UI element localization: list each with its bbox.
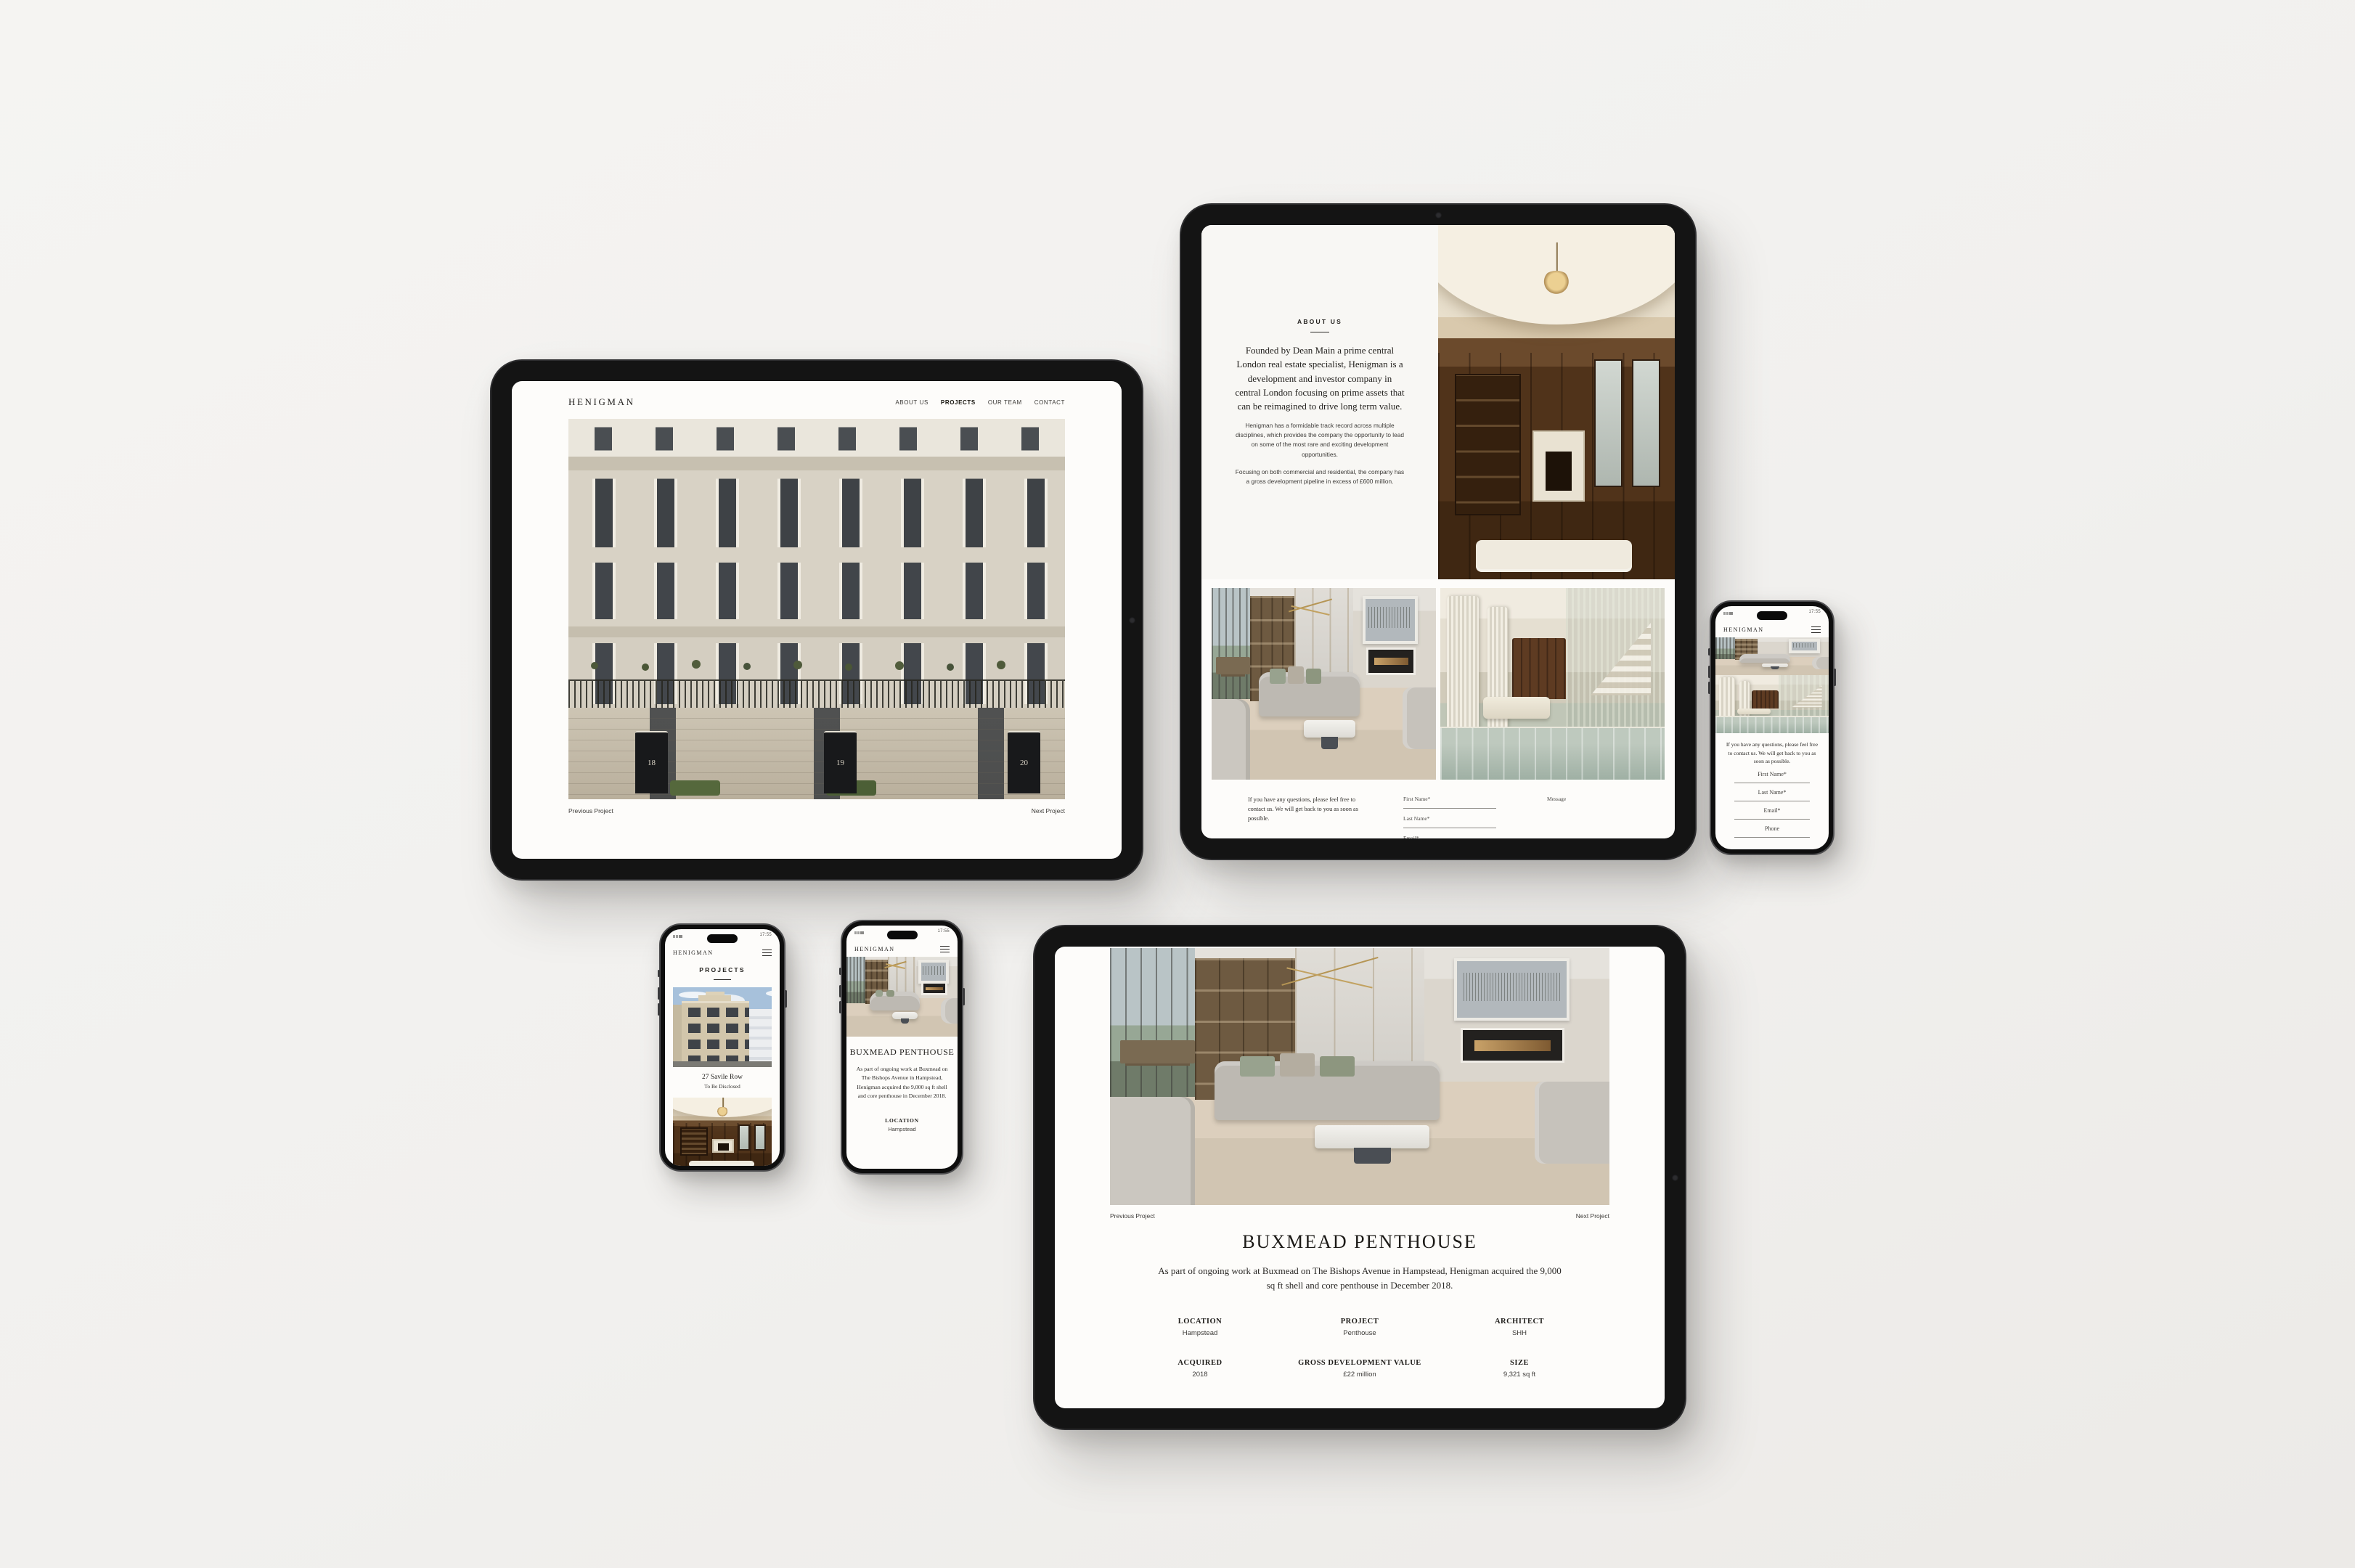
detail-location: LOCATION Hampstead: [1120, 1318, 1280, 1337]
window-wall: [1715, 637, 1735, 659]
detail-gdv: GROSS DEVELOPMENT VALUE £22 million: [1280, 1359, 1440, 1379]
detail-label: LOCATION: [846, 1117, 958, 1124]
about-page-screen: ABOUT US Founded by Dean Main a prime ce…: [1201, 225, 1675, 838]
first-name-label: First Name*: [1715, 771, 1829, 777]
volume-up-button: [658, 987, 660, 1000]
buxmead-page-screen: 17:55 HENIGMAN BUXMEAD PENTHOUSE As p: [846, 926, 958, 1169]
menu-icon[interactable]: [1811, 626, 1821, 633]
phone-label: Phone: [1715, 825, 1829, 832]
savile-row-photo: [673, 987, 772, 1067]
buxmead-page-screen: Previous Project Next Project BUXMEAD PE…: [1055, 947, 1665, 1408]
dynamic-island: [1757, 611, 1787, 620]
contact-fields: First Name* Last Name* Email* Phone: [1715, 771, 1829, 838]
heading-rule: [1310, 332, 1329, 332]
project-page-screen: HENIGMAN ABOUT US PROJECTS OUR TEAM CONT…: [512, 381, 1122, 859]
indoor-pool-photo: [1440, 588, 1665, 780]
volume-up-button: [1708, 666, 1710, 678]
power-button: [1834, 669, 1836, 686]
wall-art: [918, 960, 949, 983]
detail-label: ACQUIRED: [1120, 1359, 1280, 1367]
about-body-paragraph-1: Henigman has a formidable track record a…: [1235, 421, 1405, 459]
camera-icon: [1435, 212, 1442, 219]
message-field[interactable]: Message: [1541, 796, 1646, 838]
detail-value: 9,321 sq ft: [1440, 1371, 1599, 1379]
mobile-header: HENIGMAN: [846, 940, 958, 957]
bookcase: [1455, 374, 1521, 515]
main-nav: ABOUT US PROJECTS OUR TEAM CONTACT: [895, 399, 1065, 406]
detail-label: ARCHITECT: [1440, 1318, 1599, 1326]
wall-art: [1454, 958, 1570, 1021]
detail-value: 2018: [1120, 1371, 1280, 1379]
contact-page-screen: 17:55 HENIGMAN: [1715, 606, 1829, 849]
loungers: [1483, 697, 1551, 718]
indoor-pool-photo: [1715, 675, 1829, 733]
previous-project-link[interactable]: Previous Project: [568, 807, 613, 814]
about-text-column: ABOUT US Founded by Dean Main a prime ce…: [1201, 225, 1438, 579]
sofa: [1739, 654, 1790, 663]
previous-project-link[interactable]: Previous Project: [1110, 1212, 1155, 1220]
volume-down-button: [839, 1001, 841, 1013]
detail-architect: ARCHITECT SHH: [1440, 1318, 1599, 1337]
action-button: [839, 968, 841, 975]
detail-value: SHH: [1440, 1329, 1599, 1337]
project-title: BUXMEAD PENTHOUSE: [1055, 1231, 1665, 1253]
penthouse-living-room-photo: [1110, 948, 1609, 1205]
brand-logo[interactable]: HENIGMAN: [568, 396, 635, 408]
stone-building: [682, 1001, 749, 1062]
facade-cornice: [568, 457, 1065, 470]
tall-window: [1594, 359, 1623, 487]
ipad-buxmead-page: Previous Project Next Project BUXMEAD PE…: [1033, 925, 1686, 1430]
first-name-input: [1734, 779, 1810, 783]
status-time: 17:55: [937, 929, 950, 934]
email-label: Email*: [1403, 835, 1509, 838]
bookcase: [680, 1127, 708, 1156]
window-wall: [1110, 948, 1195, 1097]
ipad-about-page: ABOUT US Founded by Dean Main a prime ce…: [1180, 203, 1697, 860]
nav-item-team[interactable]: OUR TEAM: [988, 399, 1022, 406]
brand-logo[interactable]: HENIGMAN: [673, 950, 714, 956]
street: [673, 1061, 772, 1067]
first-name-input: [1403, 804, 1496, 809]
mockup-canvas: HENIGMAN ABOUT US PROJECTS OUR TEAM CONT…: [0, 0, 2355, 1568]
brand-logo[interactable]: HENIGMAN: [1723, 626, 1764, 633]
dynamic-island: [887, 931, 918, 939]
last-name-input: [1734, 797, 1810, 801]
projects-page-screen: 17:55 HENIGMAN PROJECTS 27 Savile Row: [665, 929, 780, 1166]
dining-table: [1216, 657, 1249, 674]
coffee-table: [892, 1012, 918, 1019]
menu-icon[interactable]: [940, 946, 950, 952]
sputnik-chandelier: [1280, 953, 1380, 995]
last-name-label: Last Name*: [1403, 815, 1509, 822]
fireplace: [1532, 430, 1585, 502]
penthouse-living-room-photo: [1212, 588, 1436, 780]
project-description: As part of ongoing work at Buxmead on Th…: [1156, 1264, 1563, 1293]
detail-value: Hampstead: [846, 1126, 958, 1132]
wall-art: [1789, 639, 1819, 653]
signal-icon: [673, 935, 682, 938]
tall-window: [1632, 359, 1660, 487]
site-header: HENIGMAN ABOUT US PROJECTS OUR TEAM CONT…: [512, 381, 1122, 419]
cushion: [1288, 666, 1304, 684]
volume-down-button: [658, 1003, 660, 1016]
detail-size: SIZE 9,321 sq ft: [1440, 1359, 1599, 1379]
coffee-table: [1762, 663, 1788, 667]
door-19: 19: [824, 731, 856, 793]
detail-label: LOCATION: [1120, 1318, 1280, 1326]
wood-panel: [1512, 638, 1566, 699]
contact-blurb: If you have any questions, please feel f…: [1248, 796, 1371, 838]
sputnik-chandelier: [1288, 592, 1333, 622]
email-field[interactable]: Email*: [1715, 807, 1829, 820]
camera-icon: [1672, 1175, 1678, 1181]
door-18: 18: [635, 731, 667, 793]
last-name-field[interactable]: Last Name*: [1403, 815, 1509, 828]
project-card-title: 27 Savile Row: [673, 1074, 772, 1081]
about-body-paragraph-2: Focusing on both commercial and resident…: [1235, 467, 1405, 486]
facade-string-course: [568, 626, 1065, 638]
project-description: As part of ongoing work at Buxmead on Th…: [856, 1065, 948, 1101]
contact-blurb: If you have any questions, please feel f…: [1715, 733, 1829, 766]
gallery-row: [1212, 588, 1665, 780]
facade-balcony-railing: [568, 679, 1065, 709]
detail-label: GROSS DEVELOPMENT VALUE: [1280, 1359, 1440, 1367]
door-20: 20: [1008, 731, 1040, 793]
dining-table: [1120, 1040, 1195, 1063]
armchair: [1403, 687, 1436, 748]
email-input: [1734, 815, 1810, 820]
nav-item-about[interactable]: ABOUT US: [895, 399, 928, 406]
action-button: [658, 970, 660, 977]
power-button: [963, 988, 965, 1005]
about-lead-paragraph: Founded by Dean Main a prime central Lon…: [1235, 343, 1405, 413]
phone-field[interactable]: Phone: [1715, 825, 1829, 838]
savile-crescent-photo: 18 19 20: [568, 419, 1065, 799]
mobile-header: HENIGMAN: [1715, 621, 1829, 637]
action-button: [1708, 648, 1710, 656]
nav-item-projects[interactable]: PROJECTS: [941, 399, 976, 406]
status-time: 17:55: [1808, 610, 1821, 614]
sofa: [1476, 540, 1632, 572]
message-label: Message: [1541, 796, 1646, 802]
last-name-field[interactable]: Last Name*: [1715, 789, 1829, 801]
window-wall: [846, 957, 865, 1003]
facade-attic-floor: [568, 419, 1065, 457]
dynamic-island: [707, 934, 738, 943]
white-building: [749, 1009, 772, 1062]
armchair: [1212, 699, 1250, 780]
last-name-label: Last Name*: [1715, 789, 1829, 796]
signal-icon: [1723, 612, 1733, 615]
contact-fields-column: First Name* Last Name* Email* Phone: [1403, 796, 1509, 838]
detail-value: Hampstead: [1120, 1329, 1280, 1337]
cushion: [1240, 1056, 1275, 1077]
tall-window: [738, 1124, 750, 1150]
nav-item-contact[interactable]: CONTACT: [1034, 399, 1065, 406]
ipad-project-page: HENIGMAN ABOUT US PROJECTS OUR TEAM CONT…: [490, 359, 1143, 881]
heading-rule: [714, 979, 731, 980]
fluted-column: [1447, 596, 1478, 742]
last-name-input: [1403, 824, 1496, 828]
detail-value: £22 million: [1280, 1371, 1440, 1379]
first-name-field[interactable]: First Name*: [1715, 771, 1829, 783]
armchair: [941, 998, 958, 1024]
penthouse-living-room-photo: [846, 957, 958, 1037]
project-card-status: To Be Disclosed: [673, 1083, 772, 1090]
fireplace: [712, 1139, 734, 1153]
sofa: [689, 1161, 754, 1166]
about-heading: ABOUT US: [1297, 318, 1342, 325]
wall-art: [1363, 596, 1418, 644]
wood-panel: [1752, 690, 1779, 709]
cushion: [1280, 1053, 1315, 1077]
detail-label: PROJECT: [1280, 1318, 1440, 1326]
facade-second-floor: [568, 554, 1065, 626]
project-details-grid: LOCATION Hampstead PROJECT Penthouse ARC…: [1120, 1318, 1599, 1379]
fireplace: [921, 981, 948, 995]
cushion: [1270, 669, 1286, 684]
first-name-field[interactable]: First Name*: [1403, 796, 1509, 809]
menu-icon[interactable]: [762, 950, 772, 956]
fluted-column: [1719, 677, 1735, 722]
about-section: ABOUT US Founded by Dean Main a prime ce…: [1201, 225, 1675, 579]
detail-value: Penthouse: [1280, 1329, 1440, 1337]
armchair: [1110, 1097, 1195, 1205]
phone-input: [1734, 833, 1810, 838]
detail-label: SIZE: [1440, 1359, 1599, 1367]
project-card-savile-row[interactable]: 27 Savile Row To Be Disclosed: [673, 987, 772, 1090]
mobile-header: HENIGMAN: [665, 944, 780, 960]
coffee-table: [1315, 1125, 1429, 1148]
signal-icon: [854, 931, 864, 934]
project-title: BUXMEAD PENTHOUSE: [846, 1047, 958, 1058]
contact-section: If you have any questions, please feel f…: [1201, 780, 1675, 838]
projects-heading: PROJECTS: [665, 966, 780, 973]
cushion: [886, 990, 894, 997]
loungers: [1737, 709, 1771, 715]
project-pager: Previous Project Next Project: [1055, 1205, 1665, 1220]
iphone-buxmead-page: 17:55 HENIGMAN BUXMEAD PENTHOUSE As p: [841, 920, 963, 1175]
cushion: [1320, 1056, 1355, 1077]
next-project-link[interactable]: Next Project: [1576, 1212, 1609, 1220]
chandelier: [716, 1107, 729, 1117]
power-button: [785, 990, 787, 1008]
armchair: [1535, 1082, 1609, 1164]
project-pager: Previous Project Next Project: [512, 799, 1122, 814]
email-field[interactable]: Email*: [1403, 835, 1509, 838]
tall-window: [754, 1124, 766, 1150]
detail-project: PROJECT Penthouse: [1280, 1318, 1440, 1337]
brand-logo[interactable]: HENIGMAN: [854, 946, 895, 952]
fireplace: [1366, 648, 1416, 675]
cushion: [1306, 669, 1322, 684]
chandelier: [1541, 271, 1572, 295]
wood-panelled-room-photo[interactable]: [673, 1098, 772, 1166]
volume-up-button: [839, 985, 841, 997]
coffee-table: [1304, 720, 1355, 738]
first-name-label: First Name*: [1403, 796, 1509, 802]
facade-first-floor: [568, 470, 1065, 554]
sputnik-chandelier: [884, 958, 907, 971]
camera-icon: [1129, 617, 1135, 624]
hedge: [670, 780, 719, 796]
detail-acquired: ACQUIRED 2018: [1120, 1359, 1280, 1379]
email-label: Email*: [1715, 807, 1829, 814]
iphone-contact-page: 17:55 HENIGMAN: [1710, 600, 1834, 855]
cushion: [876, 990, 883, 997]
penthouse-living-room-photo: [1715, 637, 1829, 675]
window-wall: [1212, 588, 1250, 699]
status-time: 17:55: [759, 933, 772, 937]
adjacent-building: [673, 1005, 682, 1061]
armchair: [1812, 657, 1829, 669]
pool-water: [1715, 716, 1829, 733]
fireplace: [1461, 1028, 1565, 1063]
volume-down-button: [1708, 682, 1710, 694]
wood-panelled-room-photo: [1438, 225, 1675, 579]
pool-water: [1440, 727, 1665, 780]
project-detail-location: LOCATION Hampstead: [846, 1117, 958, 1132]
next-project-link[interactable]: Next Project: [1032, 807, 1065, 814]
iphone-projects-page: 17:55 HENIGMAN PROJECTS 27 Savile Row: [659, 923, 785, 1172]
